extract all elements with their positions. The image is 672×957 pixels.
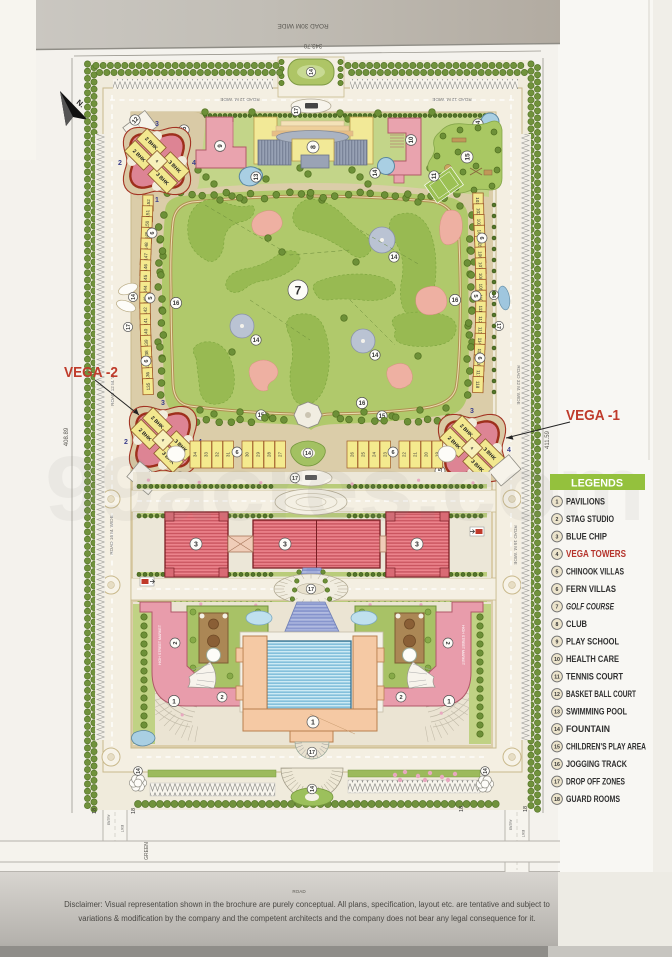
- svg-text:18: 18: [459, 806, 465, 812]
- svg-text:CHINOOK VILLAS: CHINOOK VILLAS: [566, 567, 624, 577]
- svg-text:HIGH STREET MARKET: HIGH STREET MARKET: [158, 624, 162, 665]
- svg-text:3: 3: [161, 400, 165, 407]
- svg-text:BLUE CHIP: BLUE CHIP: [566, 532, 607, 542]
- svg-text:variations & modification by t: variations & modification by the company…: [78, 914, 535, 923]
- svg-text:PLAY SCHOOL: PLAY SCHOOL: [566, 637, 619, 647]
- svg-text:2: 2: [556, 517, 559, 523]
- svg-text:SWIMMING POOL: SWIMMING POOL: [566, 707, 627, 717]
- svg-text:ENTRY: ENTRY: [509, 818, 513, 830]
- svg-text:LEGENDS: LEGENDS: [571, 478, 623, 490]
- svg-text:14: 14: [373, 169, 379, 176]
- svg-text:14: 14: [136, 768, 142, 774]
- svg-text:FOUNTAIN: FOUNTAIN: [566, 724, 610, 734]
- svg-text:ENTRY: ENTRY: [107, 813, 111, 825]
- svg-text:STAG STUDIO: STAG STUDIO: [566, 514, 614, 524]
- svg-text:14: 14: [310, 786, 316, 792]
- svg-text:14: 14: [131, 294, 137, 300]
- svg-text:Disclaimer: Visual representat: Disclaimer: Visual representation shown …: [64, 900, 550, 909]
- svg-text:17: 17: [308, 587, 314, 593]
- svg-text:2: 2: [444, 641, 450, 644]
- svg-text:FERN VILLAS: FERN VILLAS: [566, 584, 616, 594]
- svg-text:16: 16: [452, 298, 459, 304]
- svg-text:2: 2: [173, 641, 179, 644]
- svg-text:8: 8: [311, 145, 318, 149]
- svg-text:9: 9: [556, 640, 559, 646]
- svg-text:6: 6: [150, 231, 156, 234]
- svg-text:2: 2: [220, 695, 223, 701]
- svg-text:ROAD 30M WIDE: ROAD 30M WIDE: [277, 22, 328, 29]
- svg-text:ROAD 12 M. WIDE: ROAD 12 M. WIDE: [220, 97, 259, 102]
- svg-text:1: 1: [155, 197, 159, 204]
- svg-text:10: 10: [554, 657, 560, 663]
- svg-text:VEGA -1: VEGA -1: [566, 407, 620, 424]
- svg-text:17: 17: [309, 750, 315, 756]
- svg-text:10: 10: [409, 136, 415, 143]
- svg-text:14: 14: [309, 69, 315, 75]
- svg-text:GREEN: GREEN: [144, 842, 150, 860]
- svg-text:15: 15: [554, 745, 560, 751]
- svg-text:14: 14: [483, 768, 489, 774]
- svg-text:3: 3: [155, 121, 159, 128]
- svg-text:1: 1: [311, 720, 315, 727]
- svg-text:18: 18: [131, 808, 137, 814]
- svg-text:13: 13: [554, 710, 560, 716]
- svg-text:16: 16: [554, 762, 560, 768]
- svg-text:17: 17: [554, 780, 560, 786]
- svg-text:17: 17: [294, 108, 300, 114]
- svg-text:DROP OFF ZONES: DROP OFF ZONES: [566, 777, 625, 787]
- svg-text:14: 14: [391, 255, 398, 261]
- svg-text:3: 3: [556, 535, 559, 541]
- svg-text:13: 13: [254, 173, 260, 180]
- svg-text:ROAD 12 M. WIDE: ROAD 12 M. WIDE: [432, 97, 471, 102]
- svg-text:PAVILIONS: PAVILIONS: [566, 497, 605, 507]
- svg-text:14: 14: [253, 338, 260, 344]
- svg-text:16: 16: [173, 301, 180, 307]
- svg-text:16: 16: [359, 401, 366, 407]
- svg-text:135: 135: [146, 382, 151, 390]
- svg-text:14: 14: [372, 353, 379, 359]
- svg-text:3: 3: [194, 542, 198, 549]
- svg-text:EXIT: EXIT: [120, 825, 124, 832]
- svg-text:JOGGING TRACK: JOGGING TRACK: [566, 759, 627, 769]
- svg-text:18: 18: [554, 797, 560, 803]
- svg-text:TENNIS COURT: TENNIS COURT: [566, 672, 623, 682]
- svg-text:6: 6: [556, 587, 559, 593]
- svg-text:15: 15: [464, 153, 471, 161]
- svg-text:3: 3: [470, 408, 474, 415]
- svg-text:ROAD 32 M. WIDE: ROAD 32 M. WIDE: [516, 365, 521, 404]
- svg-text:1: 1: [556, 500, 559, 506]
- svg-text:VEGA -2: VEGA -2: [64, 364, 118, 381]
- svg-text:2: 2: [118, 160, 122, 167]
- svg-text:1: 1: [172, 698, 176, 705]
- svg-text:18: 18: [92, 808, 98, 814]
- svg-text:8: 8: [556, 622, 559, 628]
- svg-text:5: 5: [472, 294, 478, 297]
- svg-text:7: 7: [295, 283, 302, 297]
- svg-text:HEALTH CARE: HEALTH CARE: [566, 654, 619, 664]
- svg-text:GOLF COURSE: GOLF COURSE: [566, 602, 615, 612]
- svg-text:HIGH STREET MARKET: HIGH STREET MARKET: [461, 625, 465, 666]
- svg-text:11: 11: [432, 172, 438, 179]
- svg-text:BASKET BALL COURT: BASKET BALL COURT: [566, 689, 636, 699]
- svg-text:3: 3: [283, 542, 287, 549]
- svg-text:5: 5: [556, 570, 559, 576]
- svg-text:118: 118: [475, 381, 480, 389]
- svg-text:4: 4: [556, 552, 559, 558]
- svg-text:VEGA TOWERS: VEGA TOWERS: [566, 548, 626, 560]
- svg-text:343.70: 343.70: [303, 42, 322, 48]
- svg-text:5: 5: [148, 296, 154, 299]
- svg-text:3: 3: [415, 542, 419, 549]
- svg-text:6: 6: [476, 356, 482, 359]
- svg-text:11: 11: [554, 675, 560, 681]
- svg-text:1: 1: [447, 698, 451, 705]
- svg-text:2: 2: [399, 695, 402, 701]
- svg-text:4: 4: [192, 160, 196, 167]
- svg-text:18: 18: [523, 806, 529, 812]
- svg-text:14: 14: [554, 727, 560, 733]
- svg-text:CHILDREN'S PLAY AREA: CHILDREN'S PLAY AREA: [566, 742, 646, 752]
- svg-text:12: 12: [554, 692, 560, 698]
- svg-text:6: 6: [478, 236, 484, 239]
- svg-text:7: 7: [556, 605, 559, 611]
- svg-text:6: 6: [144, 359, 150, 362]
- svg-text:CLUB: CLUB: [566, 619, 587, 629]
- svg-text:17: 17: [126, 324, 132, 330]
- svg-text:EXIT: EXIT: [521, 830, 525, 837]
- svg-text:GUARD ROOMS: GUARD ROOMS: [566, 794, 620, 804]
- svg-text:ROAD: ROAD: [292, 889, 306, 894]
